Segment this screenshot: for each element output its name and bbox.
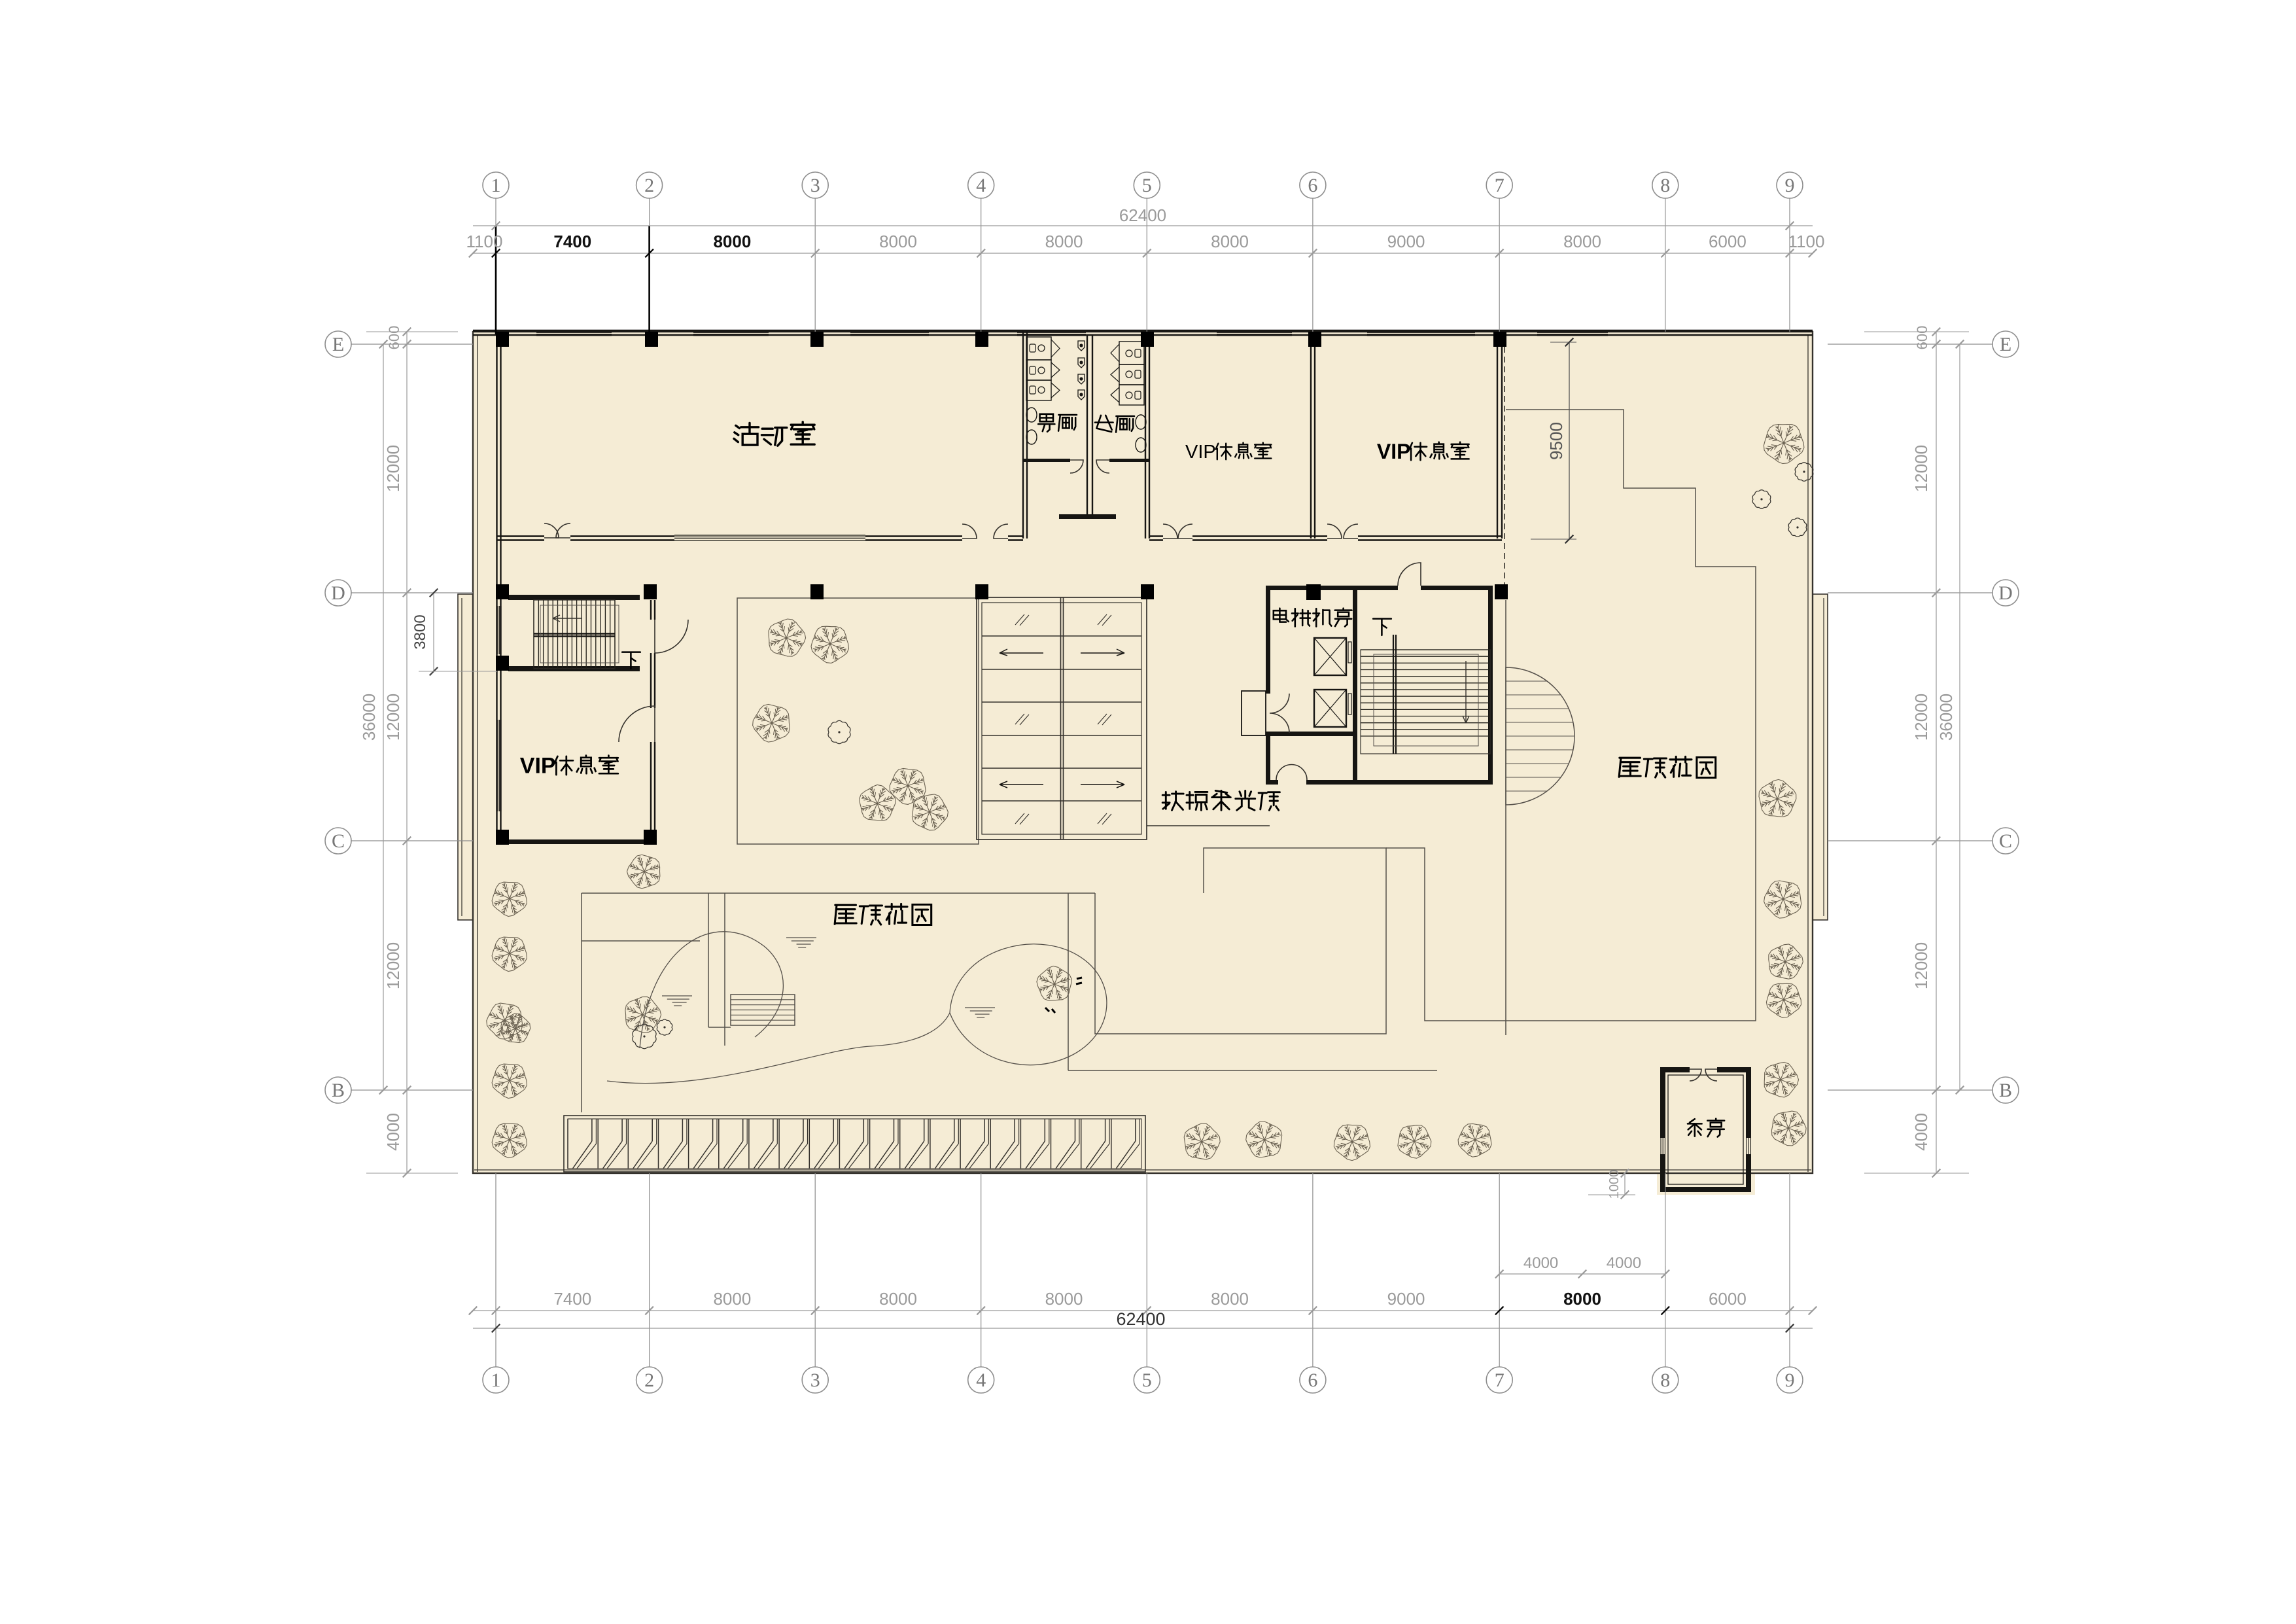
svg-text:8000: 8000 [1045,1289,1083,1309]
svg-text:600: 600 [386,326,402,350]
svg-text:VIP: VIP [520,754,556,779]
svg-text:D: D [1998,582,2013,604]
svg-text:4000: 4000 [1911,1113,1931,1151]
svg-text:9000: 9000 [1387,1289,1425,1309]
svg-text:C: C [1999,830,2012,852]
svg-text:8000: 8000 [879,232,917,251]
svg-text:9: 9 [1785,1369,1795,1391]
svg-text:6000: 6000 [1709,1289,1747,1309]
svg-text:E: E [332,334,344,355]
svg-text:36000: 36000 [359,694,379,741]
svg-text:12000: 12000 [1911,694,1931,741]
svg-text:62400: 62400 [1116,1309,1165,1329]
svg-text:3: 3 [810,1369,820,1391]
svg-text:8000: 8000 [879,1289,917,1309]
svg-text:8: 8 [1660,1369,1670,1391]
svg-text:62400: 62400 [1119,205,1166,225]
svg-text:6000: 6000 [1709,232,1747,251]
svg-text:2: 2 [644,175,654,196]
svg-text:VIP: VIP [1377,440,1411,463]
svg-text:7: 7 [1495,1369,1505,1391]
svg-text:12000: 12000 [1911,942,1931,989]
svg-text:B: B [332,1080,345,1101]
svg-text:12000: 12000 [383,942,403,989]
svg-text:3: 3 [810,175,820,196]
svg-text:9500: 9500 [1546,422,1566,460]
svg-text:5: 5 [1142,1369,1152,1391]
svg-text:5: 5 [1142,175,1152,196]
svg-text:D: D [331,582,345,604]
svg-text:7400: 7400 [553,1289,591,1309]
svg-text:C: C [332,830,345,852]
svg-text:E: E [2000,334,2011,355]
svg-text:6: 6 [1308,175,1317,196]
svg-text:8000: 8000 [1211,232,1249,251]
svg-text:12000: 12000 [383,694,403,741]
svg-text:1: 1 [491,1369,501,1391]
svg-text:1000: 1000 [1607,1170,1622,1199]
svg-text:VIP: VIP [1185,442,1216,463]
svg-text:8000: 8000 [1211,1289,1249,1309]
svg-text:36000: 36000 [1936,694,1956,741]
svg-text:9: 9 [1785,175,1795,196]
svg-text:12000: 12000 [383,445,403,492]
svg-text:1100: 1100 [1788,232,1825,251]
svg-text:9000: 9000 [1387,232,1425,251]
svg-text:600: 600 [1914,326,1930,350]
svg-text:4: 4 [976,175,986,196]
svg-text:8000: 8000 [713,232,751,251]
svg-text:3800: 3800 [411,614,429,649]
svg-text:6: 6 [1308,1369,1317,1391]
svg-text:B: B [1999,1080,2012,1101]
svg-text:1: 1 [491,175,501,196]
svg-text:12000: 12000 [1911,445,1931,492]
svg-text:8: 8 [1660,175,1670,196]
svg-text:8000: 8000 [1563,232,1601,251]
svg-text:7400: 7400 [553,232,591,251]
svg-text:8000: 8000 [713,1289,751,1309]
svg-text:4: 4 [976,1369,986,1391]
svg-text:2: 2 [644,1369,654,1391]
svg-text:4000: 4000 [1523,1254,1558,1272]
svg-text:4000: 4000 [1607,1254,1641,1272]
svg-text:8000: 8000 [1563,1289,1601,1309]
svg-text:8000: 8000 [1045,232,1083,251]
svg-text:4000: 4000 [383,1113,403,1151]
svg-text:1100: 1100 [466,232,503,251]
svg-text:7: 7 [1495,175,1505,196]
